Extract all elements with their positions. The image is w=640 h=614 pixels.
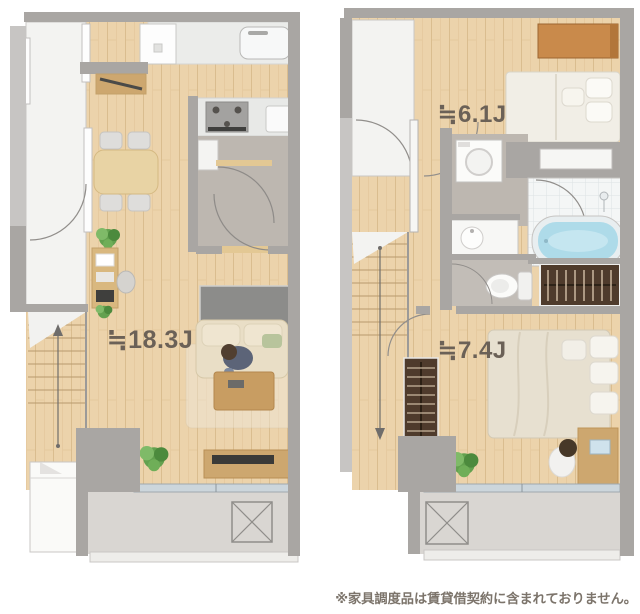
stair-banister — [410, 120, 418, 232]
closet-hanger-small — [404, 358, 438, 440]
floorplan-image: ≒18.3J — [0, 0, 640, 614]
table-item — [228, 380, 244, 388]
wardrobe-side — [610, 24, 618, 58]
closet-hanger — [540, 264, 620, 306]
toilet — [486, 272, 532, 300]
pillow — [590, 336, 618, 358]
dining-chair — [128, 132, 150, 149]
floorplan-1f: ≒18.3J — [10, 12, 300, 562]
desk-chair — [117, 271, 135, 293]
stairs-2f — [352, 232, 408, 460]
floorplan-2f: ≒6.1J ≒7.4J — [340, 8, 634, 560]
washing-machine — [456, 140, 502, 182]
pillow — [562, 88, 584, 106]
drain — [544, 239, 548, 243]
pillow — [586, 78, 612, 98]
entry-corridor — [26, 22, 86, 306]
door-threshold — [216, 160, 272, 166]
laptop — [590, 440, 610, 454]
outer-wall-light — [10, 26, 26, 226]
cushion — [262, 334, 282, 348]
bedroom-small-label: ≒6.1J — [437, 101, 506, 128]
bed-single — [506, 72, 620, 142]
burner — [235, 107, 242, 114]
outer-wall-light — [340, 118, 352, 472]
balcony-edge — [90, 552, 298, 562]
hall-closet — [198, 140, 218, 170]
balcony-edge — [424, 550, 620, 560]
living-dining-label: ≒18.3J — [107, 326, 194, 354]
bathroom — [528, 178, 624, 266]
wardrobe-chest — [538, 24, 618, 58]
faucet — [248, 31, 268, 35]
washbasin — [450, 220, 518, 256]
dining-chair — [128, 194, 150, 211]
pillow — [586, 102, 612, 122]
bed-double — [488, 330, 618, 438]
pillow — [590, 392, 618, 414]
bedroom-large-label: ≒7.4J — [437, 337, 506, 364]
toilet-tank — [518, 272, 532, 300]
desk-item — [96, 272, 114, 282]
burner — [224, 121, 230, 127]
coffee-table — [214, 372, 274, 410]
laptop — [96, 290, 114, 302]
balcony-2f — [420, 484, 620, 560]
dining-table — [94, 150, 158, 194]
burner — [213, 107, 220, 114]
bathtub-water — [548, 230, 608, 252]
disclaimer-text: ※家具調度品は賃貸借契約に含まれておりません。 — [335, 590, 637, 606]
dining-chair — [100, 132, 122, 149]
floorplan-svg: ≒18.3J — [0, 0, 640, 614]
wall — [80, 62, 148, 74]
desk-item — [96, 254, 114, 266]
shower-head — [600, 192, 608, 200]
refrigerator-detail — [154, 44, 162, 52]
void-closet — [352, 20, 414, 176]
dining-chair — [100, 194, 122, 211]
faucet — [470, 229, 474, 233]
pillow — [590, 362, 618, 384]
stove-panel — [208, 127, 246, 131]
window — [540, 149, 612, 169]
desk-2f — [578, 428, 618, 486]
window — [84, 128, 92, 232]
balcony-1f — [86, 484, 298, 562]
tv — [212, 455, 274, 464]
pillow — [562, 340, 586, 360]
